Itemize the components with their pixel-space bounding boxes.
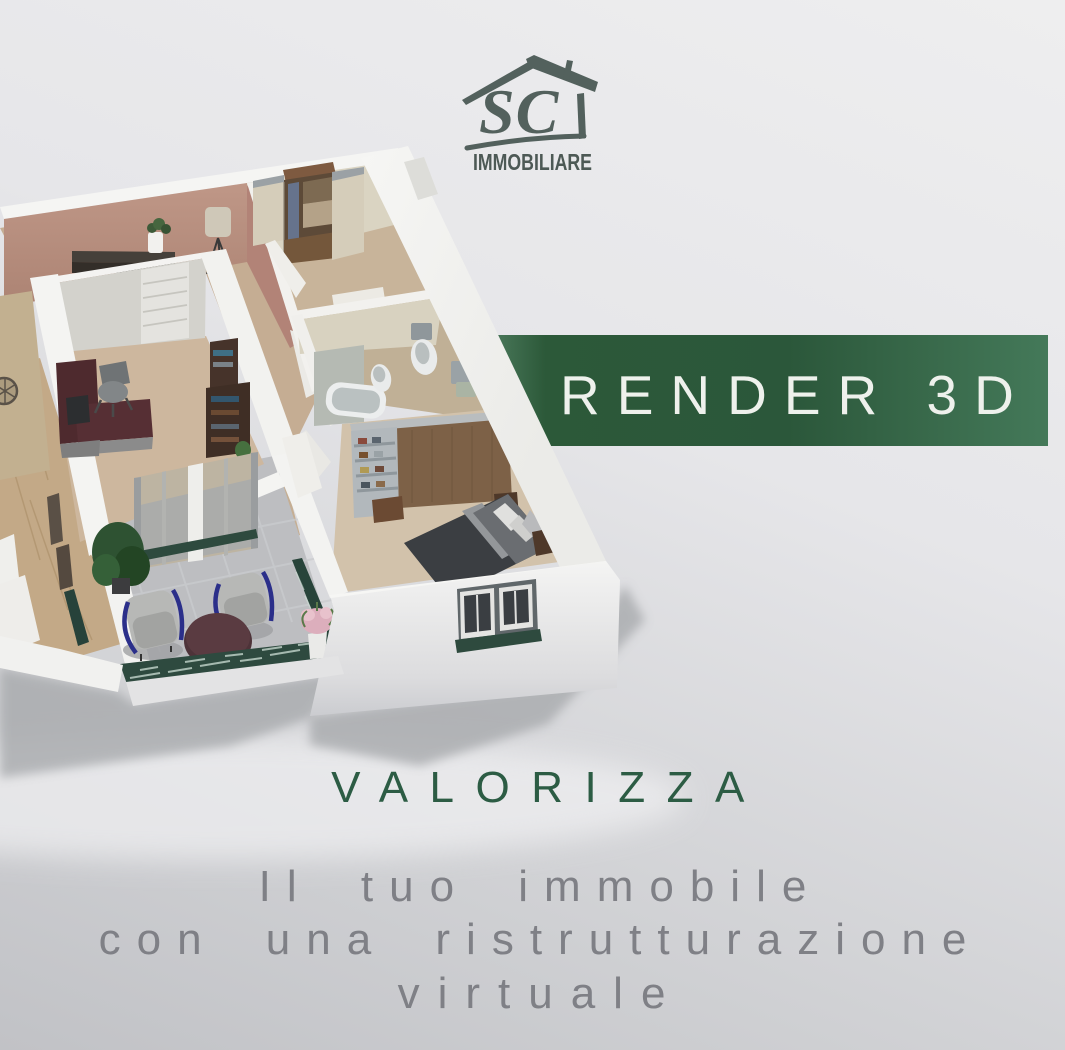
svg-text:IMMOBILIARE: IMMOBILIARE — [473, 149, 592, 175]
svg-text:RENDER 3D: RENDER 3D — [560, 364, 1031, 426]
